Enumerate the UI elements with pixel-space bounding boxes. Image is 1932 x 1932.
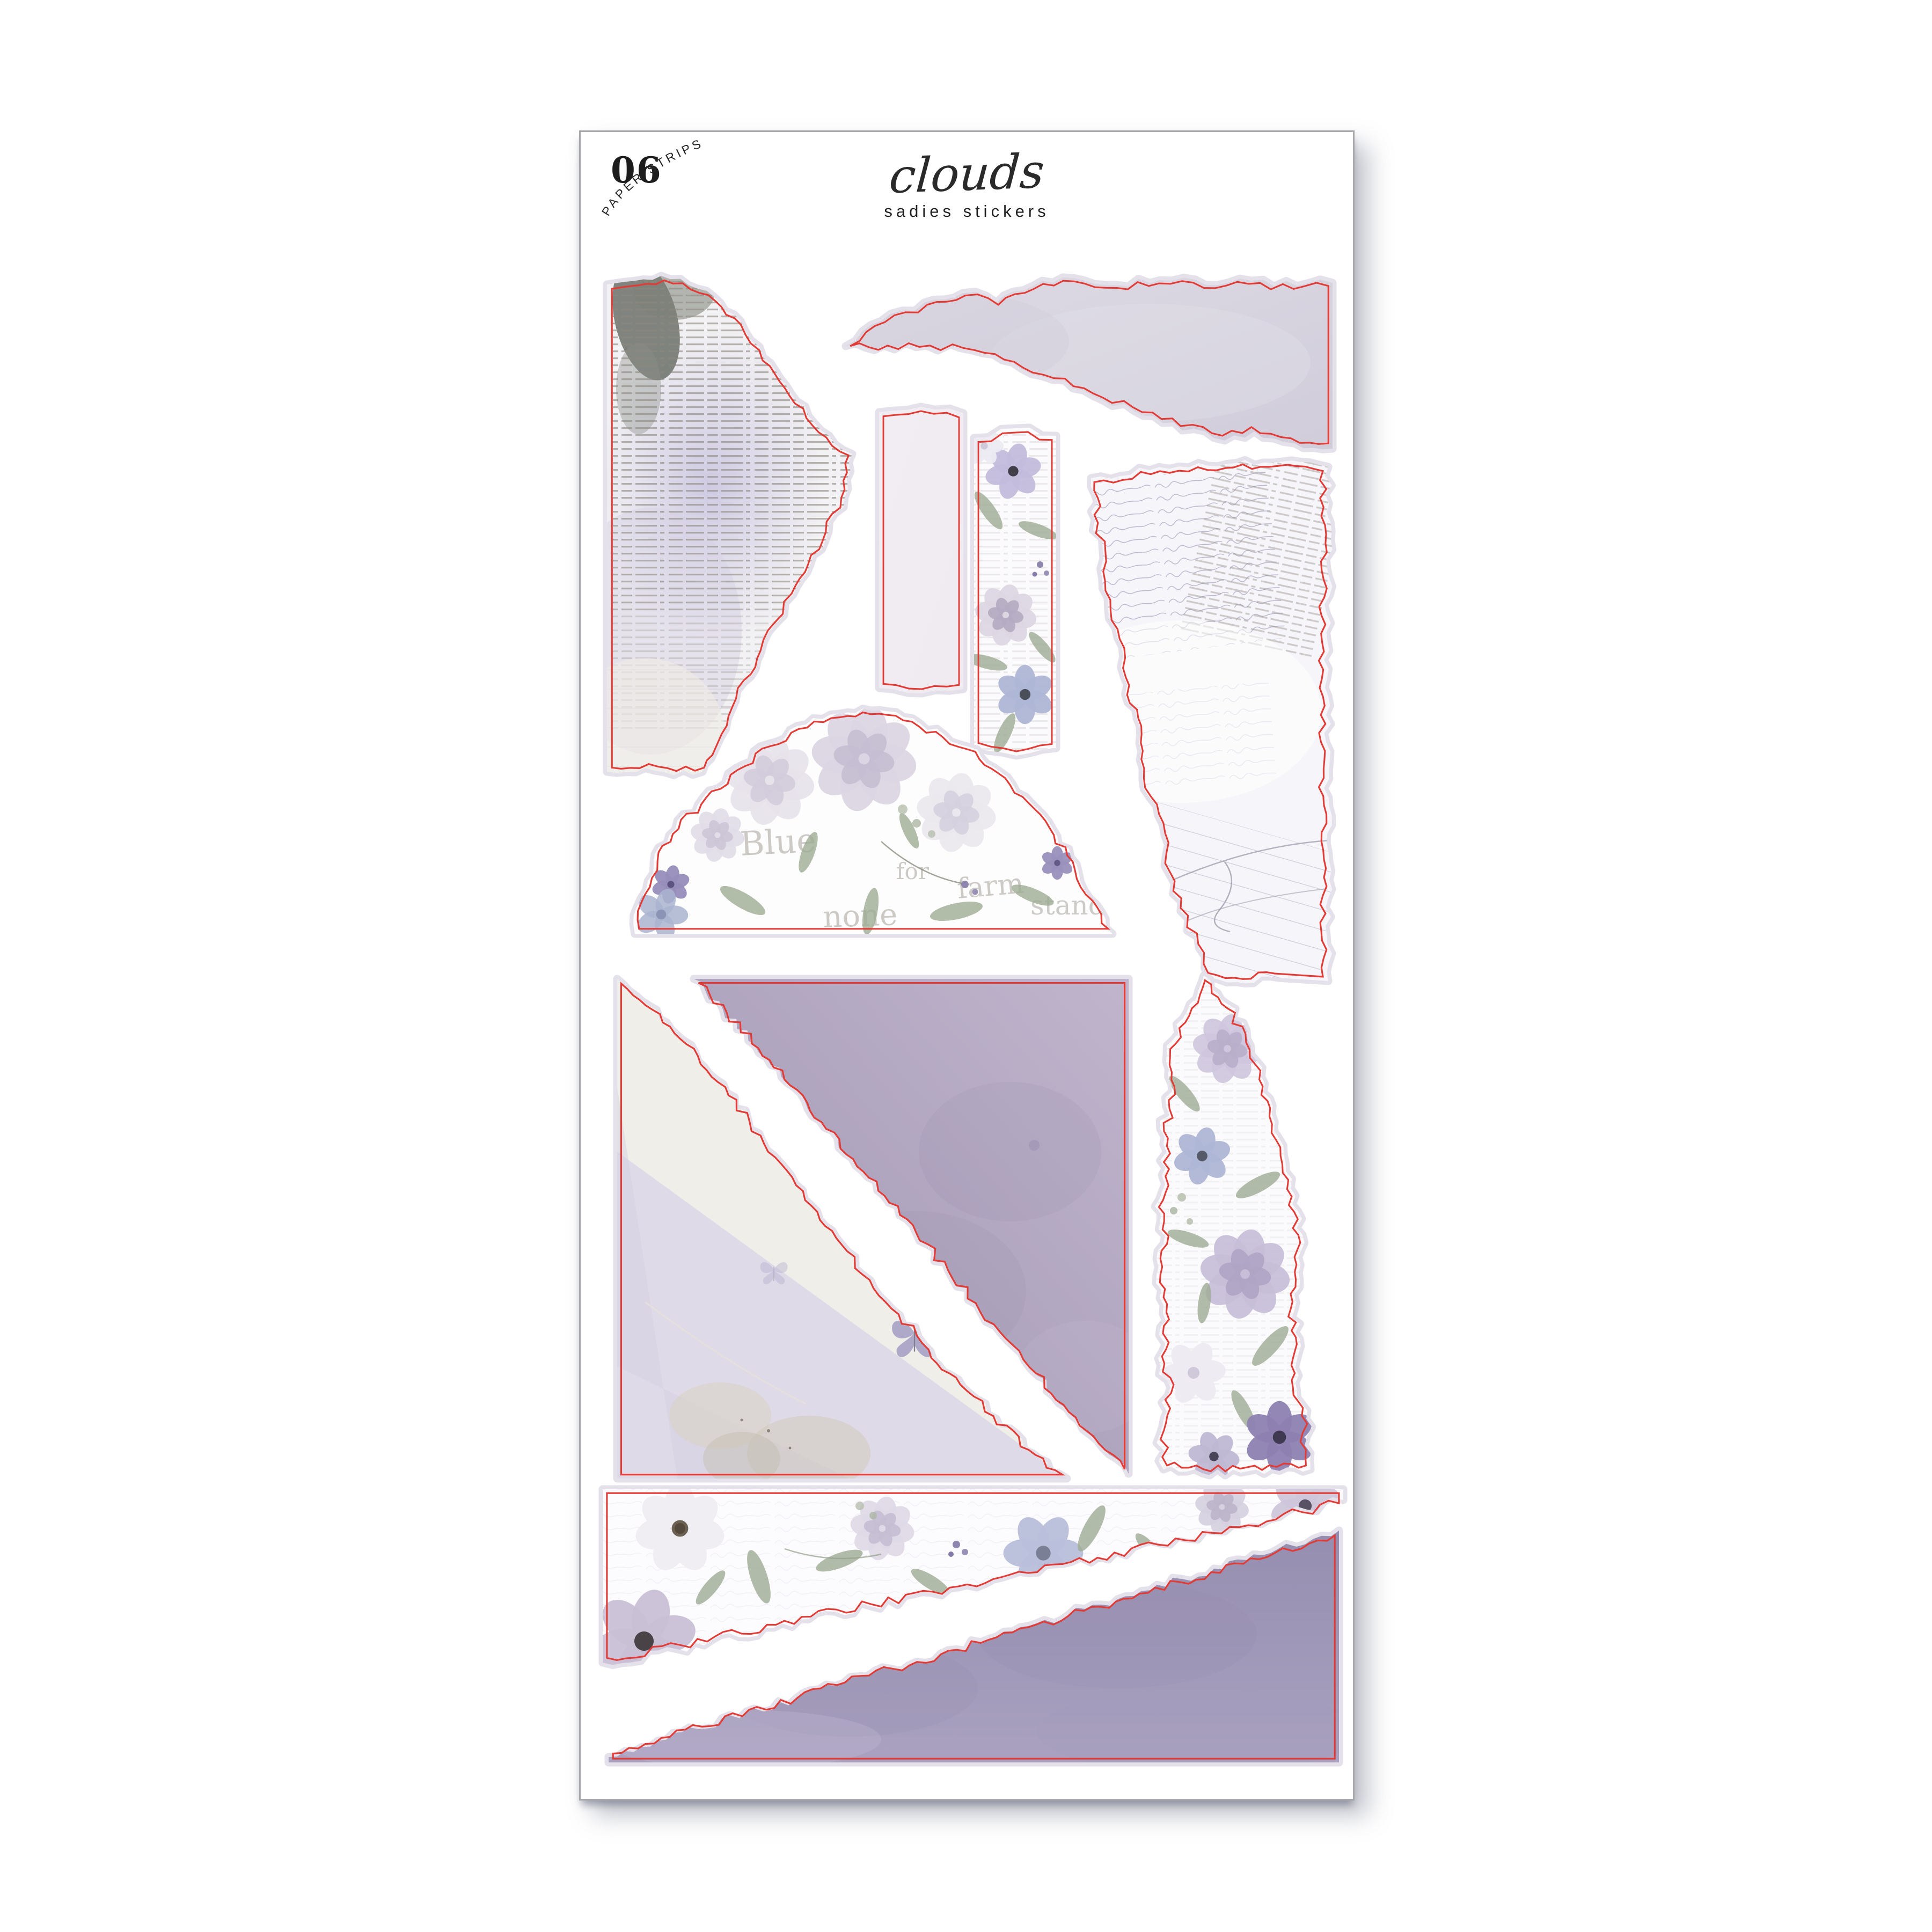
tall-floral-strip (1150, 969, 1317, 1494)
product-photo: 06 PAPER STRIPS clouds sadies stickers B… (0, 0, 1932, 1932)
stickers-canvas: Blueforfarmstandsnone (581, 132, 1353, 1799)
blank-paper-strip (874, 403, 970, 698)
sticker-art (874, 403, 970, 698)
sticker-sheet: 06 PAPER STRIPS clouds sadies stickers B… (579, 130, 1355, 1801)
floral-paper-strip (957, 419, 1061, 760)
sticker-art (1150, 969, 1317, 1494)
